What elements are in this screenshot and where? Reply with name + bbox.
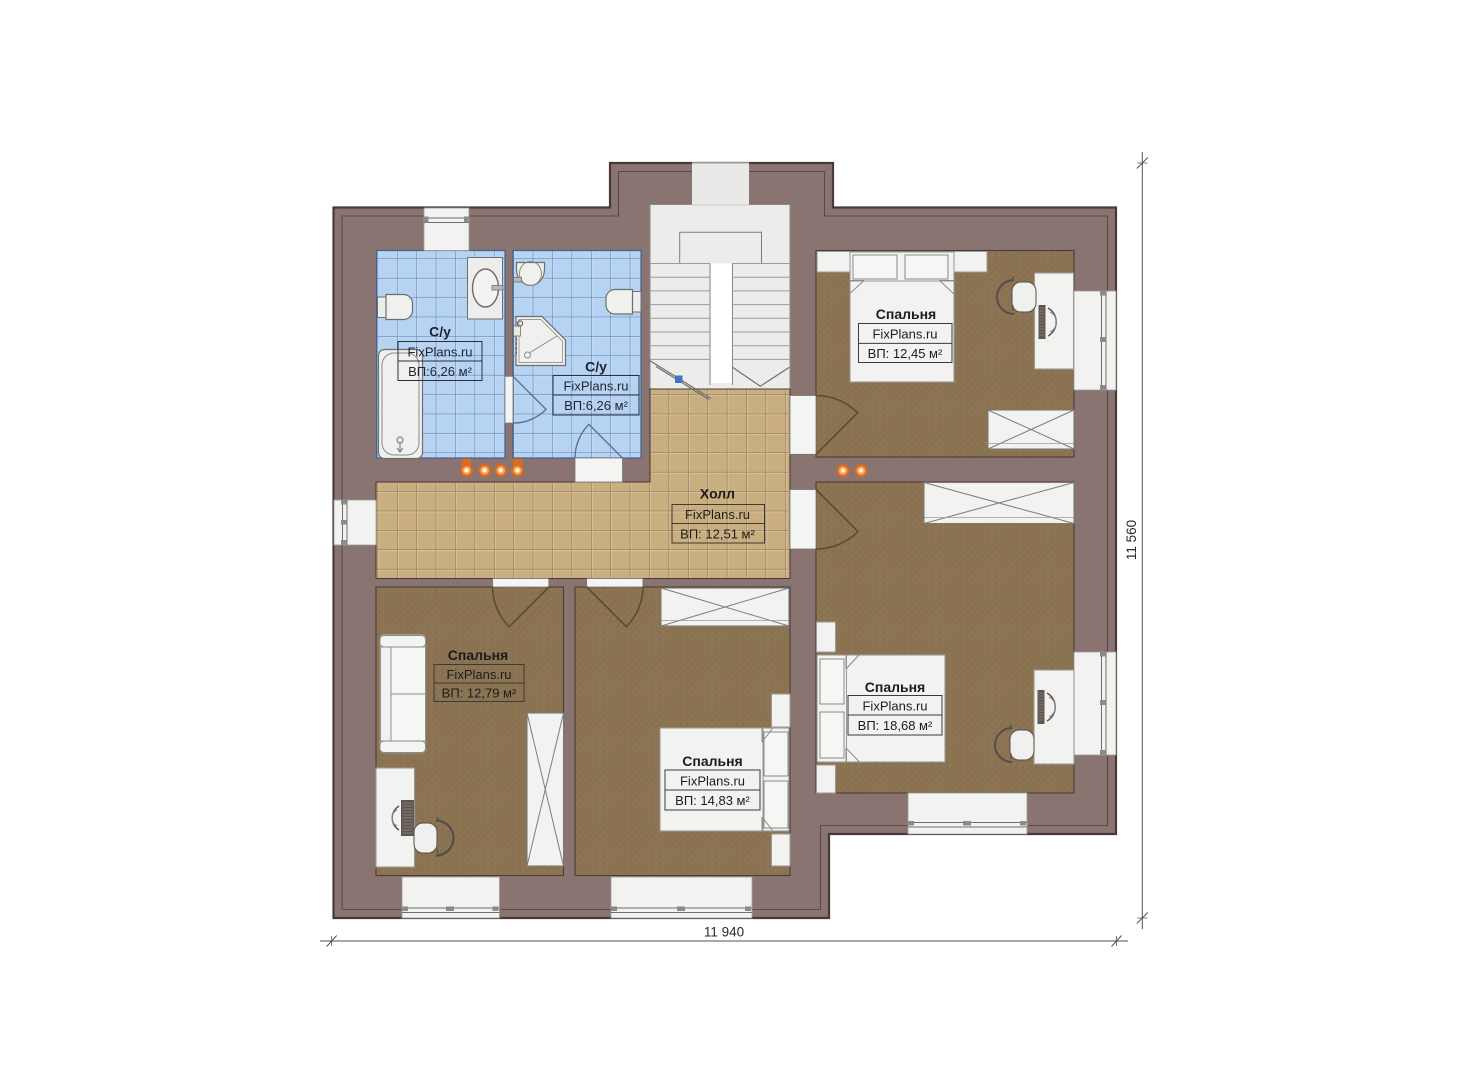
- svg-text:С/у: С/у: [429, 324, 451, 340]
- svg-text:ВП: 18,68 м²: ВП: 18,68 м²: [858, 718, 933, 733]
- svg-text:FixPlans.ru: FixPlans.ru: [862, 699, 927, 714]
- svg-text:FixPlans.ru: FixPlans.ru: [680, 774, 745, 789]
- svg-text:Холл: Холл: [700, 486, 735, 502]
- svg-text:FixPlans.ru: FixPlans.ru: [407, 345, 472, 360]
- svg-text:11 560: 11 560: [1124, 520, 1139, 560]
- svg-text:Спальня: Спальня: [448, 647, 508, 663]
- svg-text:С/у: С/у: [585, 359, 607, 375]
- svg-text:ВП: 14,83 м²: ВП: 14,83 м²: [675, 793, 750, 808]
- svg-text:FixPlans.ru: FixPlans.ru: [685, 507, 750, 522]
- svg-text:ВП:6,26 м²: ВП:6,26 м²: [564, 398, 628, 413]
- svg-text:ВП: 12,45 м²: ВП: 12,45 м²: [868, 346, 943, 361]
- svg-text:FixPlans.ru: FixPlans.ru: [872, 327, 937, 342]
- svg-text:Спальня: Спальня: [682, 753, 742, 769]
- svg-text:Спальня: Спальня: [876, 306, 936, 322]
- svg-text:ВП: 12,51 м²: ВП: 12,51 м²: [680, 527, 755, 542]
- svg-text:FixPlans.ru: FixPlans.ru: [446, 667, 511, 682]
- svg-text:11 940: 11 940: [704, 925, 744, 940]
- svg-text:FixPlans.ru: FixPlans.ru: [563, 379, 628, 394]
- svg-text:ВП:6,26 м²: ВП:6,26 м²: [408, 364, 472, 379]
- svg-text:ВП: 12,79 м²: ВП: 12,79 м²: [442, 686, 517, 701]
- svg-text:Спальня: Спальня: [865, 679, 925, 695]
